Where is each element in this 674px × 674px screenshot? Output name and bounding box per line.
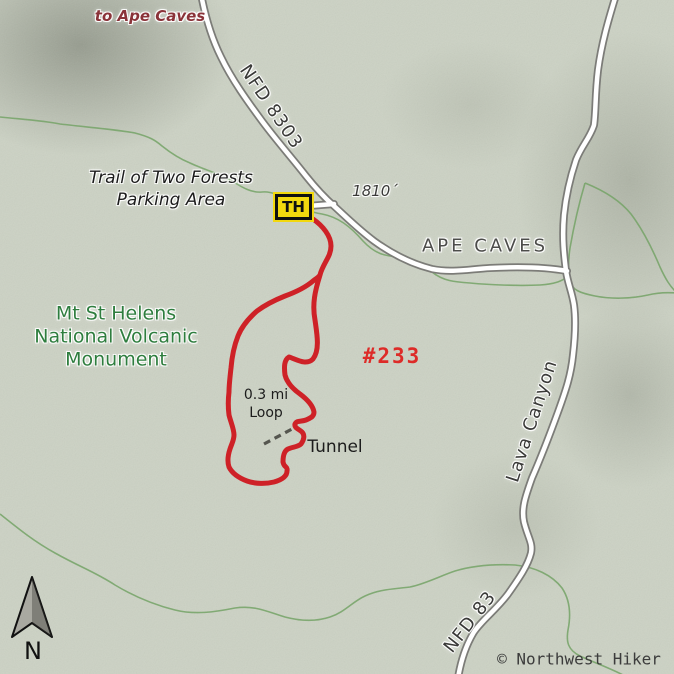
copyright-watermark: © Northwest Hiker [497, 650, 661, 669]
tunnel-label: Tunnel [307, 437, 362, 457]
ape-caves-label: APE CAVES [422, 236, 548, 257]
loop-distance-line1: 0.3 mi [244, 386, 288, 404]
loop-distance-line2: Loop [244, 404, 288, 422]
trailhead-marker: TH [275, 194, 312, 220]
monument-line2: National Volcanic [34, 326, 198, 349]
parking-area-line2: Parking Area [89, 189, 253, 211]
elevation-label: 1810´ [352, 182, 398, 200]
monument-line3: Monument [34, 349, 198, 372]
parking-area-line1: Trail of Two Forests [89, 167, 253, 189]
monument-line1: Mt St Helens [34, 303, 198, 326]
trail-map: to Ape Caves NFD 8303 Trail of Two Fores… [0, 0, 674, 674]
trail-number-label: #233 [363, 344, 422, 368]
to-ape-caves-label: to Ape Caves [95, 7, 205, 25]
loop-distance-label: 0.3 mi Loop [244, 386, 288, 422]
north-arrow-n-label: N [24, 637, 42, 665]
parking-area-label: Trail of Two Forests Parking Area [89, 167, 253, 211]
monument-label: Mt St Helens National Volcanic Monument [34, 303, 198, 372]
